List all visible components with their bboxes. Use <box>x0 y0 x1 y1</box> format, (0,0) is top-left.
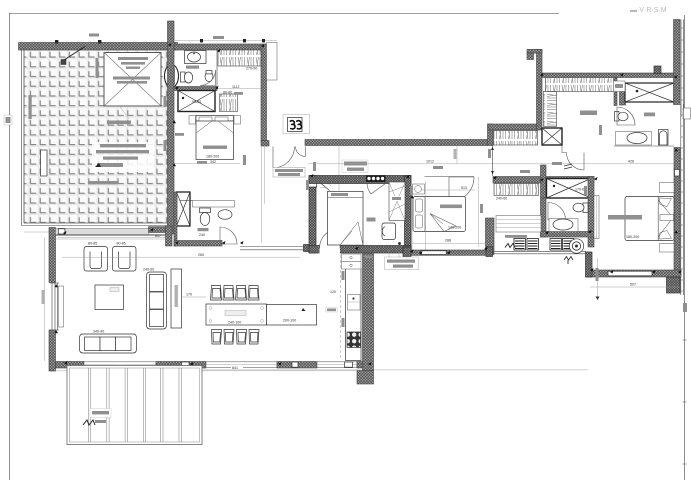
svg-text:80-60: 80-60 <box>223 91 232 95</box>
svg-text:180-200: 180-200 <box>626 235 639 239</box>
svg-text:340-90: 340-90 <box>93 330 104 334</box>
svg-text:170: 170 <box>186 293 192 297</box>
svg-text:270-90: 270-90 <box>246 67 257 71</box>
svg-text:240: 240 <box>199 233 205 237</box>
svg-text:288: 288 <box>445 239 451 243</box>
svg-text:426: 426 <box>628 159 634 163</box>
svg-text:80-85: 80-85 <box>117 242 126 246</box>
svg-text:▬·V·R·S·M: ▬·V·R·S·M <box>630 7 667 14</box>
svg-text:807: 807 <box>155 234 161 238</box>
svg-text:80-85: 80-85 <box>88 242 97 246</box>
svg-text:513: 513 <box>461 186 467 190</box>
svg-text:240-100: 240-100 <box>228 320 241 324</box>
svg-text:120: 120 <box>330 290 336 294</box>
svg-text:200-100: 200-100 <box>283 319 296 323</box>
svg-text:342: 342 <box>210 160 216 164</box>
svg-text:841: 841 <box>232 366 238 370</box>
svg-text:1112: 1112 <box>232 85 239 89</box>
svg-text:265: 265 <box>198 253 204 257</box>
svg-text:240-60: 240-60 <box>496 197 507 201</box>
svg-text:180-200: 180-200 <box>206 155 219 159</box>
svg-text:140-200: 140-200 <box>448 226 461 230</box>
svg-text:507: 507 <box>630 283 636 287</box>
svg-text:240-90: 240-90 <box>143 268 154 272</box>
svg-text:90-65: 90-65 <box>192 100 201 104</box>
svg-text:1012: 1012 <box>426 159 434 163</box>
